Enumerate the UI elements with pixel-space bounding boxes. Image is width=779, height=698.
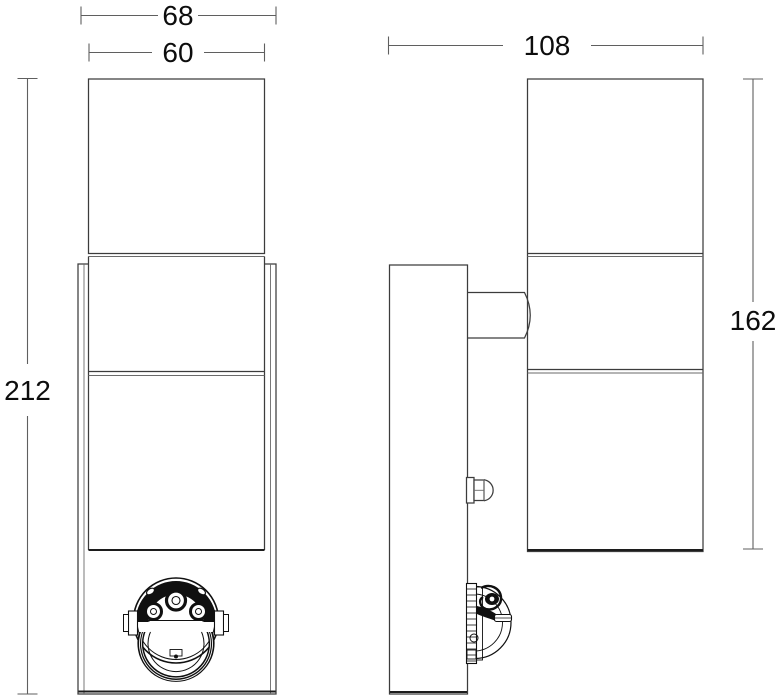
side-wall-plate-outline xyxy=(390,265,468,694)
dim-overall-height-label: 212 xyxy=(4,375,51,406)
sensor-tab-left xyxy=(129,611,138,635)
side-photocell-dome xyxy=(467,478,494,504)
side-motion-sensor xyxy=(467,584,512,664)
photocell-dome-arc xyxy=(484,480,493,501)
side-wall-plate xyxy=(390,265,468,694)
side-tube-outline xyxy=(528,79,704,552)
side-bracket-arm xyxy=(468,293,531,339)
front-lamp-tube xyxy=(89,79,265,550)
sensor-lens-center xyxy=(167,591,186,610)
side-lamp-tube xyxy=(528,79,704,552)
dim-tube-length-label: 162 xyxy=(730,305,777,336)
technical-drawing-canvas: 68 60 108 212 162 xyxy=(0,0,779,698)
dim-tube-length: 162 xyxy=(730,79,777,549)
sensor-lens-right xyxy=(191,604,207,620)
sensor-tab-right xyxy=(215,611,224,635)
dim-overall-height: 212 xyxy=(4,79,51,695)
front-view xyxy=(78,79,276,694)
dim-overall-depth-label: 108 xyxy=(524,30,571,61)
dim-overall-width: 68 xyxy=(81,0,276,31)
sensor-lens-left xyxy=(146,604,162,620)
side-view xyxy=(390,79,704,694)
dim-tube-diameter-label: 60 xyxy=(162,37,193,68)
side-sensor-ribbed-mount xyxy=(467,584,477,664)
dim-overall-width-label: 68 xyxy=(162,0,193,31)
dim-overall-depth: 108 xyxy=(389,30,704,61)
technical-drawing-page: 68 60 108 212 162 xyxy=(0,0,779,698)
dim-tube-diameter: 60 xyxy=(89,37,265,68)
dimensions: 68 60 108 212 162 xyxy=(4,0,776,694)
front-motion-sensor xyxy=(124,578,229,682)
front-tube-upper-section xyxy=(89,79,265,254)
